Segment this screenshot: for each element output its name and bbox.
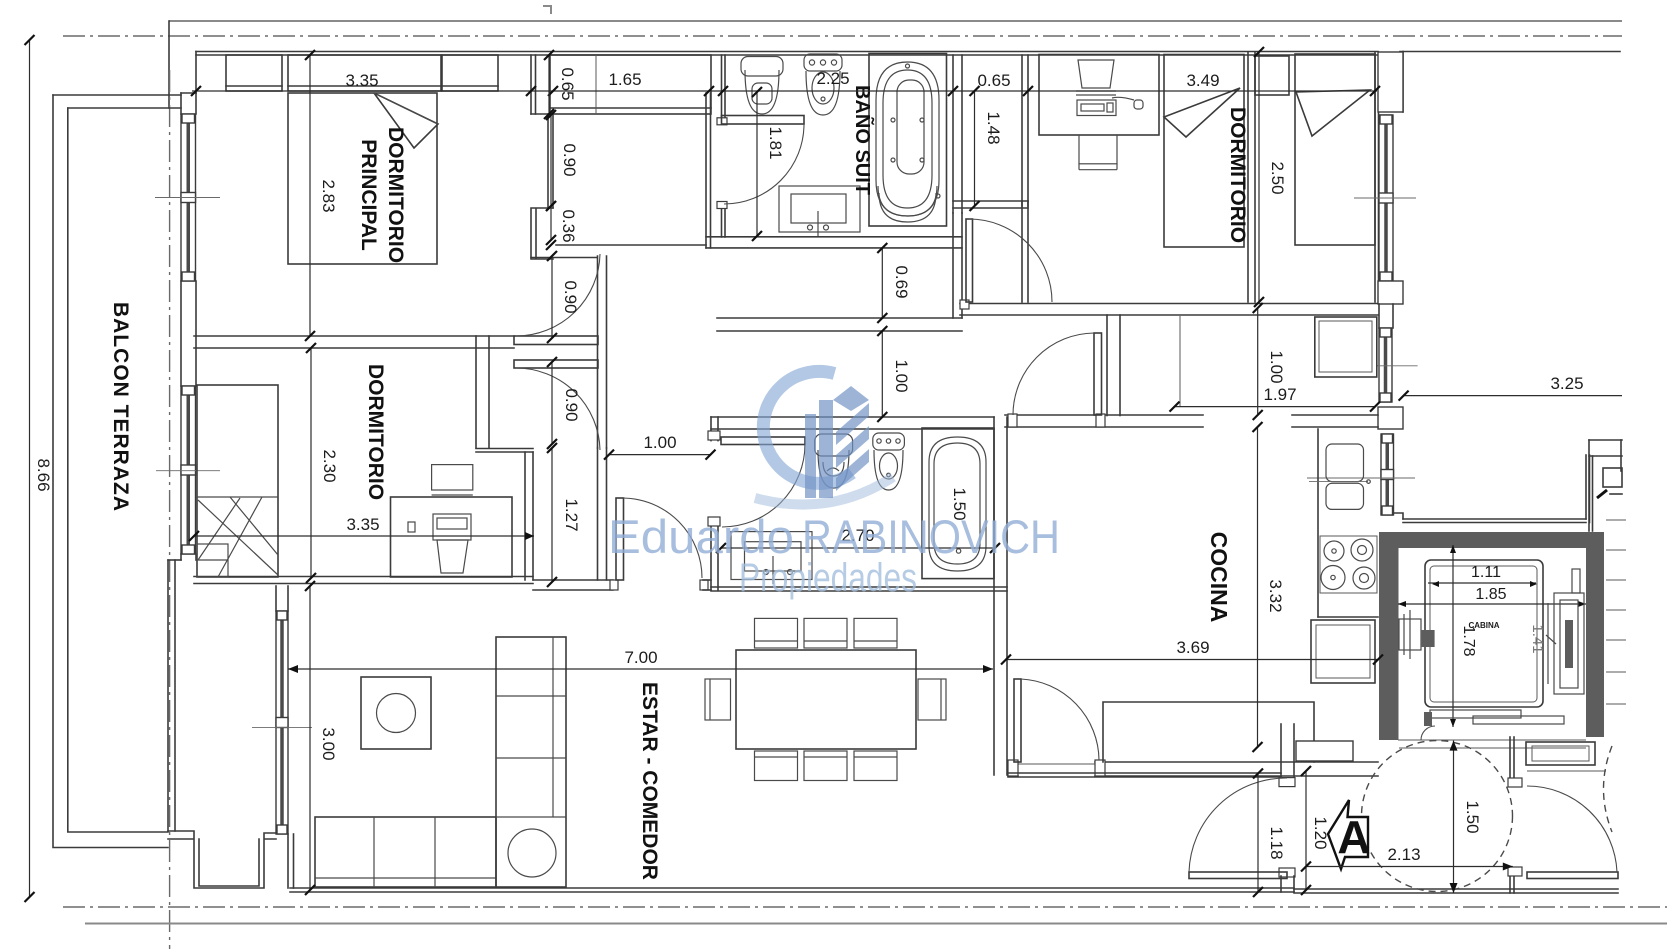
- svg-text:1.27: 1.27: [562, 498, 581, 531]
- svg-text:7.00: 7.00: [624, 648, 657, 667]
- svg-text:1.48: 1.48: [984, 111, 1003, 144]
- svg-text:1.11: 1.11: [1471, 564, 1501, 581]
- svg-text:3.69: 3.69: [1176, 638, 1209, 657]
- svg-text:DORMITORIO: DORMITORIO: [1226, 107, 1249, 243]
- svg-text:ESTAR - COMEDOR: ESTAR - COMEDOR: [638, 682, 661, 880]
- svg-text:0.65: 0.65: [558, 67, 577, 100]
- svg-text:BALCON TERRAZA: BALCON TERRAZA: [109, 302, 132, 512]
- svg-text:1.65: 1.65: [608, 70, 641, 89]
- svg-text:0.90: 0.90: [561, 280, 580, 313]
- svg-text:A: A: [1337, 811, 1370, 863]
- svg-text:1.81: 1.81: [766, 126, 785, 159]
- svg-text:1.78: 1.78: [1460, 625, 1477, 656]
- svg-text:3.35: 3.35: [346, 515, 379, 534]
- svg-text:0.90: 0.90: [560, 143, 579, 176]
- svg-text:3.49: 3.49: [1186, 71, 1219, 90]
- svg-text:2.25: 2.25: [816, 69, 849, 88]
- svg-text:1.85: 1.85: [1475, 586, 1506, 603]
- svg-text:DORMITORIO: DORMITORIO: [384, 127, 407, 263]
- svg-text:0.90: 0.90: [562, 388, 581, 421]
- svg-text:0.65: 0.65: [977, 71, 1010, 90]
- svg-text:2.30: 2.30: [320, 449, 339, 482]
- svg-text:0.36: 0.36: [559, 209, 578, 242]
- svg-text:3.00: 3.00: [319, 727, 338, 760]
- svg-text:3.32: 3.32: [1266, 579, 1285, 612]
- svg-text:1.00: 1.00: [892, 359, 911, 392]
- svg-text:1.00: 1.00: [643, 433, 676, 452]
- svg-text:1.97: 1.97: [1263, 385, 1296, 404]
- svg-text:0.69: 0.69: [892, 265, 911, 298]
- svg-text:1.00: 1.00: [1267, 350, 1286, 383]
- svg-text:1.20: 1.20: [1311, 816, 1330, 849]
- svg-text:COCINA: COCINA: [1206, 532, 1232, 623]
- svg-text:3.35: 3.35: [345, 71, 378, 90]
- svg-text:Propiedades: Propiedades: [739, 556, 917, 600]
- svg-text:2.83: 2.83: [319, 179, 338, 212]
- svg-text:2.13: 2.13: [1387, 845, 1420, 864]
- svg-text:1.41: 1.41: [1529, 624, 1546, 653]
- svg-text:1.18: 1.18: [1267, 826, 1286, 859]
- svg-text:DORMITORIO: DORMITORIO: [364, 364, 387, 500]
- svg-text:1.50: 1.50: [1463, 800, 1482, 833]
- svg-text:CABINA: CABINA: [1468, 621, 1499, 630]
- svg-text:2.50: 2.50: [1268, 161, 1287, 194]
- svg-text:PRINCIPAL: PRINCIPAL: [357, 139, 380, 251]
- svg-text:8.66: 8.66: [34, 458, 53, 491]
- svg-text:3.25: 3.25: [1550, 374, 1583, 393]
- svg-text:BAÑO SUIT: BAÑO SUIT: [851, 85, 874, 195]
